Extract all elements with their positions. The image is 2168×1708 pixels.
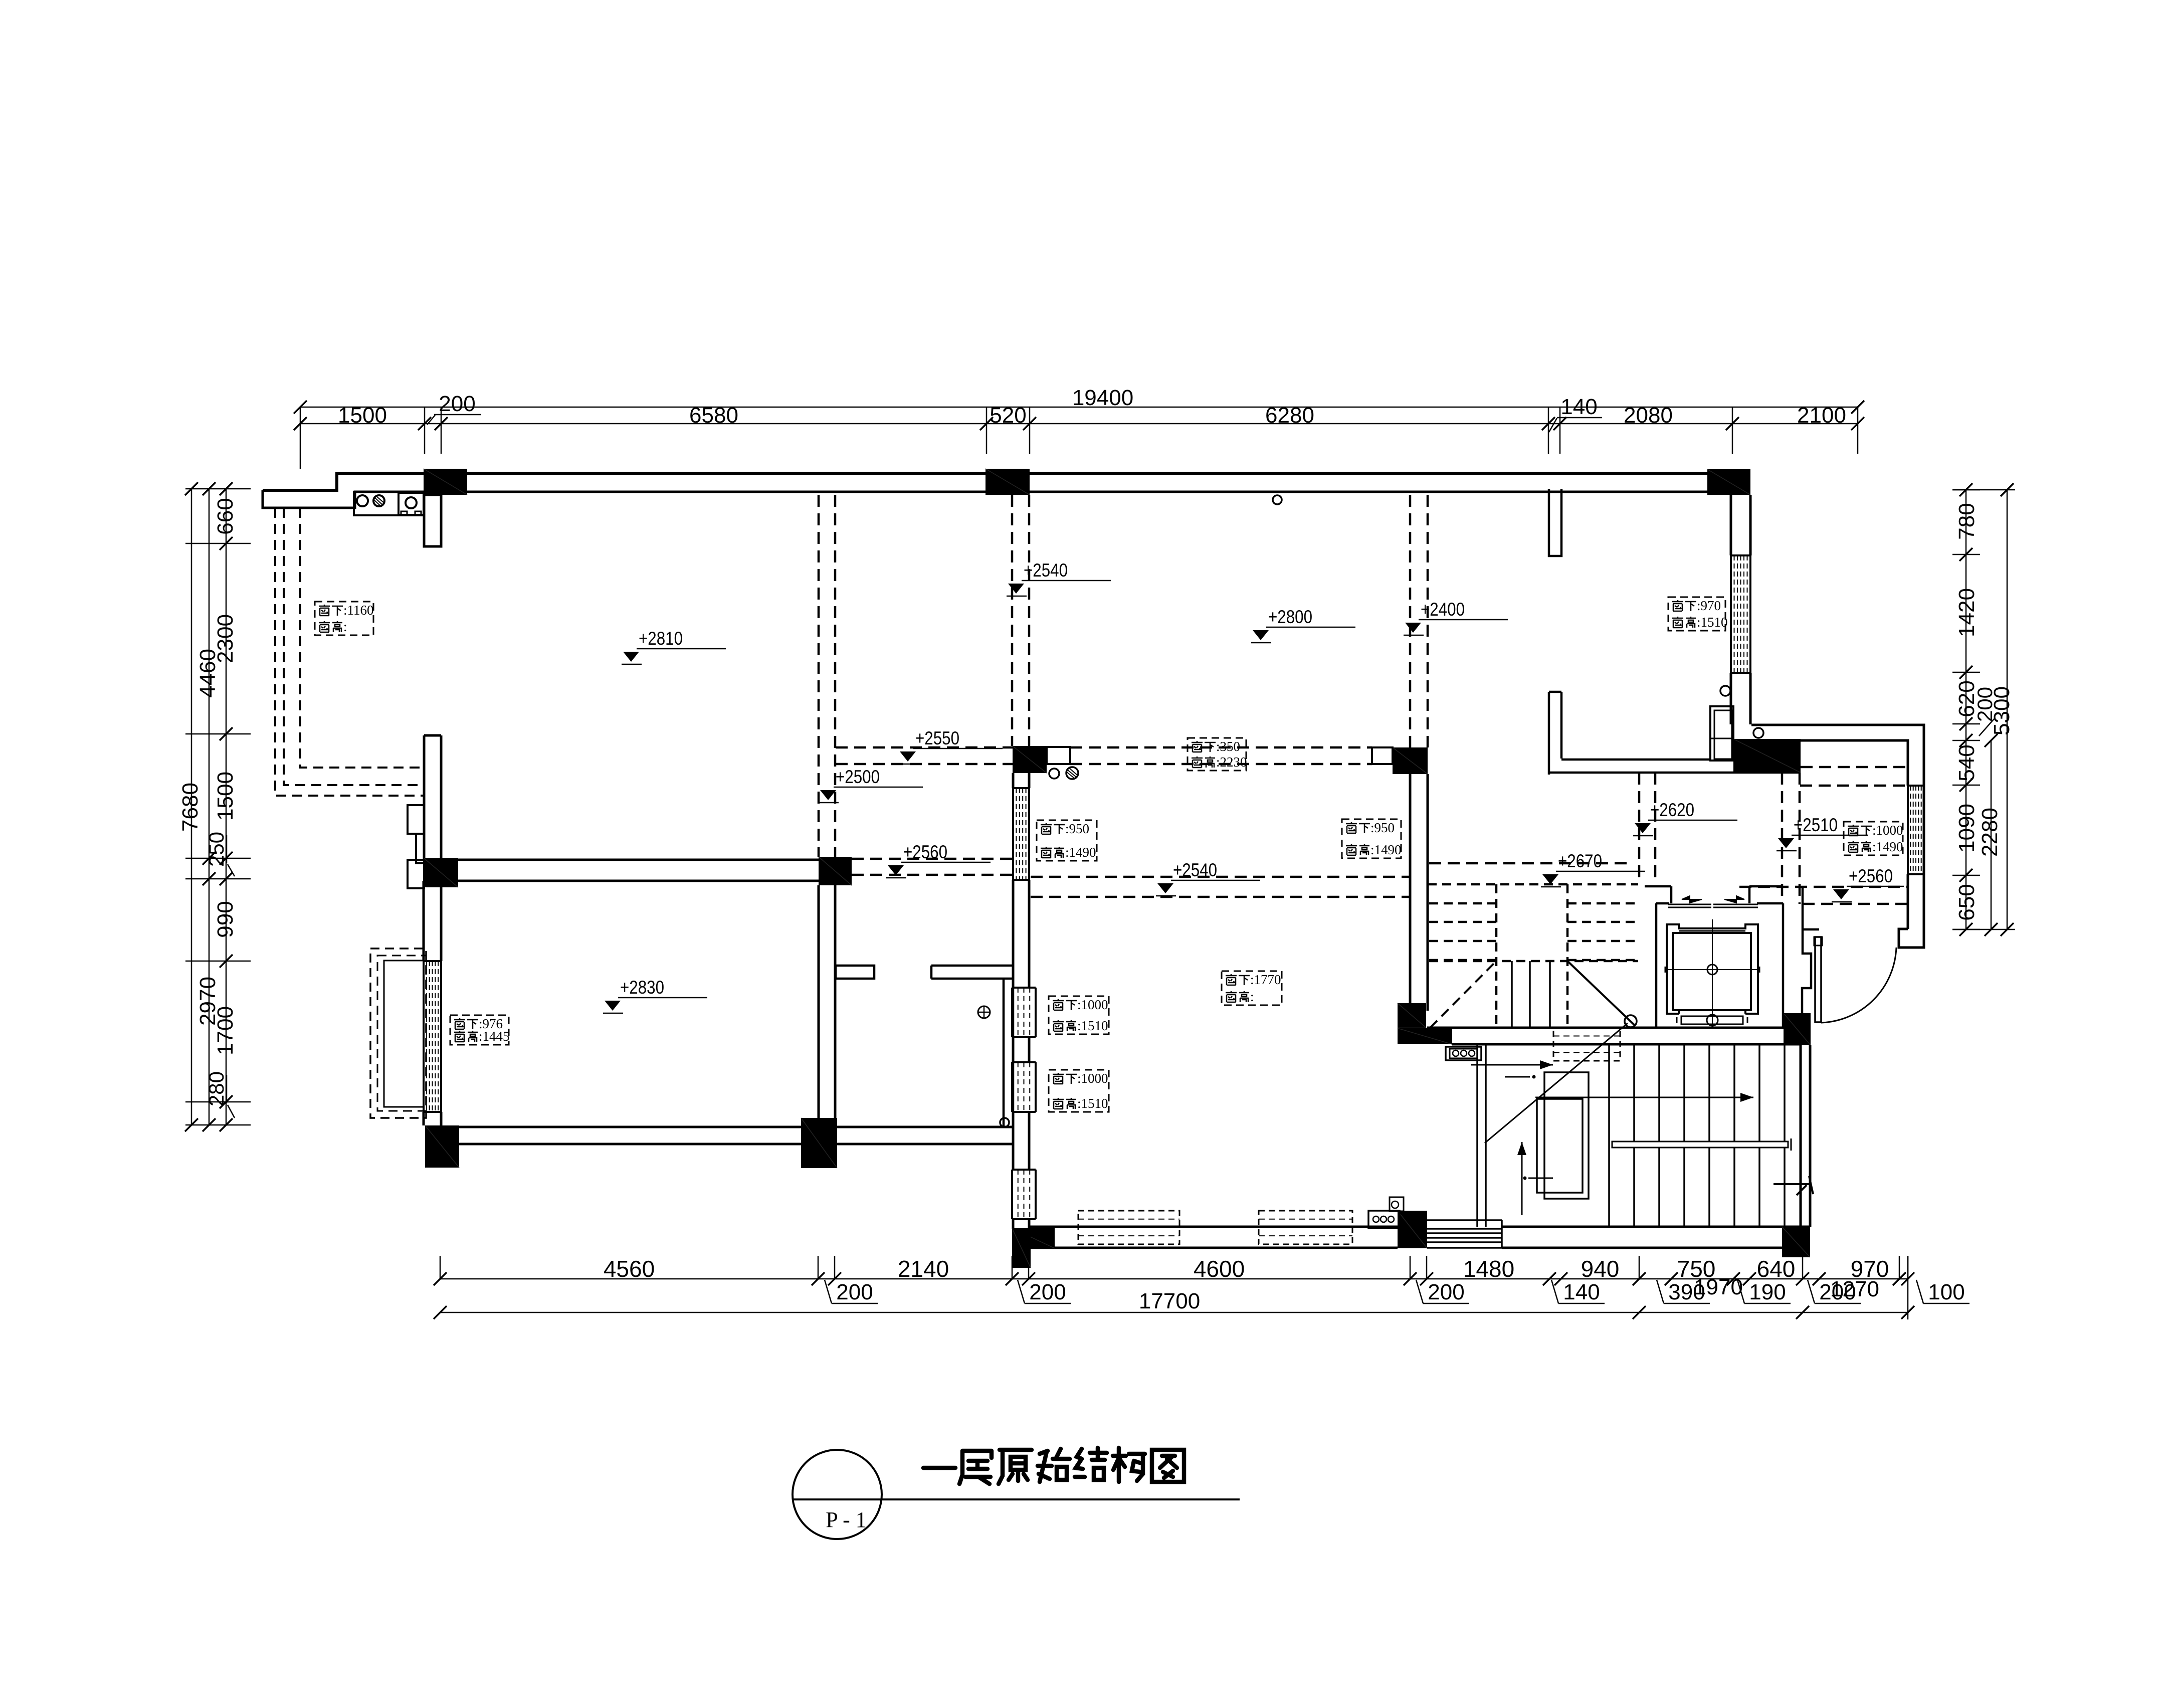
svg-text:200: 200 [1428,1280,1464,1304]
svg-text:+2670: +2670 [1558,851,1602,871]
svg-text:+2510: +2510 [1794,815,1838,835]
svg-text:+2500: +2500 [836,767,880,787]
svg-text:+2560: +2560 [1849,866,1893,886]
svg-text::1510: :1510 [1697,615,1728,630]
svg-text:1270: 1270 [1830,1277,1879,1301]
svg-text:1500: 1500 [338,403,387,428]
svg-text::950: :950 [1370,820,1395,835]
svg-text:P - 1: P - 1 [826,1507,867,1532]
svg-text:990: 990 [213,901,238,937]
svg-text:+2400: +2400 [1421,599,1465,620]
svg-text:100: 100 [1928,1280,1964,1304]
svg-text::1000: :1000 [1872,823,1903,838]
svg-text:140: 140 [1563,1280,1600,1304]
svg-text:+2810: +2810 [639,628,683,649]
svg-text:2080: 2080 [1624,403,1673,428]
svg-text::: : [1250,989,1254,1004]
svg-text::1510: :1510 [1077,1018,1108,1033]
svg-text:1480: 1480 [1463,1256,1514,1282]
svg-text:650: 650 [1954,884,1979,920]
svg-text:19400: 19400 [1072,386,1133,410]
svg-text:+2550: +2550 [915,728,959,748]
svg-text:1420: 1420 [1954,588,1979,637]
svg-text:200: 200 [439,392,475,416]
svg-text:6580: 6580 [689,403,738,428]
svg-text::2230: :2230 [1216,754,1247,770]
svg-text:7680: 7680 [178,783,203,832]
svg-text::350: :350 [1216,739,1240,754]
svg-text:2100: 2100 [1797,403,1846,428]
svg-text:+2560: +2560 [903,842,947,862]
svg-text::1490: :1490 [1872,839,1903,854]
svg-text:780: 780 [1954,503,1979,539]
svg-text:1500: 1500 [213,772,238,821]
svg-text:5300: 5300 [1990,686,2014,735]
svg-text::1490: :1490 [1065,845,1096,860]
svg-text:2280: 2280 [1978,808,2002,857]
svg-text:280: 280 [205,1071,228,1106]
svg-text:17700: 17700 [1139,1289,1200,1313]
svg-text:640: 640 [1757,1256,1796,1282]
svg-text:940: 940 [1581,1256,1620,1282]
svg-text:1090: 1090 [1954,804,1979,853]
svg-text::1160: :1160 [343,603,374,618]
svg-text:4600: 4600 [1194,1256,1245,1282]
svg-text::: : [343,619,347,634]
svg-text:540: 540 [1954,744,1979,781]
svg-text:200: 200 [1029,1280,1066,1304]
svg-text:190: 190 [1749,1280,1786,1304]
svg-text:+2800: +2800 [1268,607,1312,627]
svg-text:250: 250 [205,832,228,867]
svg-text:6280: 6280 [1265,403,1314,428]
svg-text::950: :950 [1065,821,1089,836]
svg-text:4460: 4460 [195,649,220,698]
svg-text:+2830: +2830 [620,977,664,998]
svg-text:+2540: +2540 [1173,860,1217,880]
svg-text::1445: :1445 [479,1029,510,1044]
svg-text:2970: 2970 [195,977,220,1026]
svg-text::1510: :1510 [1077,1096,1108,1111]
svg-text:2140: 2140 [898,1256,949,1282]
svg-text::1770: :1770 [1250,972,1281,987]
svg-text::970: :970 [1697,598,1721,613]
svg-text:4560: 4560 [604,1256,655,1282]
svg-text:660: 660 [213,498,238,534]
svg-text::1490: :1490 [1370,842,1402,857]
svg-text:520: 520 [990,403,1026,428]
svg-text::1000: :1000 [1077,1071,1108,1086]
svg-text:+2620: +2620 [1650,800,1694,820]
svg-text:200: 200 [836,1280,873,1304]
svg-text:140: 140 [1560,395,1597,419]
svg-text:+2540: +2540 [1024,560,1068,581]
svg-text::1000: :1000 [1077,997,1108,1012]
svg-text:1970: 1970 [1694,1275,1743,1299]
